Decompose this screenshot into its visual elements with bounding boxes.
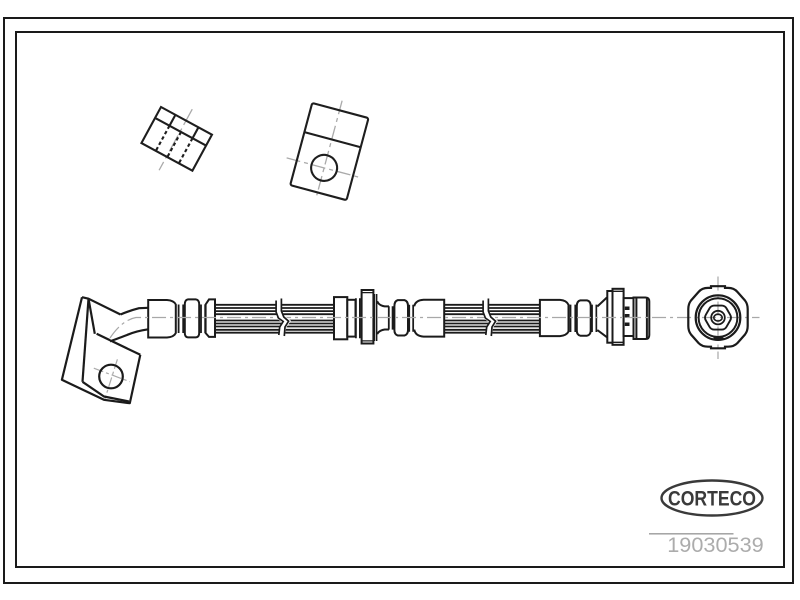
svg-text:19030539: 19030539 <box>667 534 764 557</box>
svg-text:CORTECO: CORTECO <box>668 487 756 511</box>
